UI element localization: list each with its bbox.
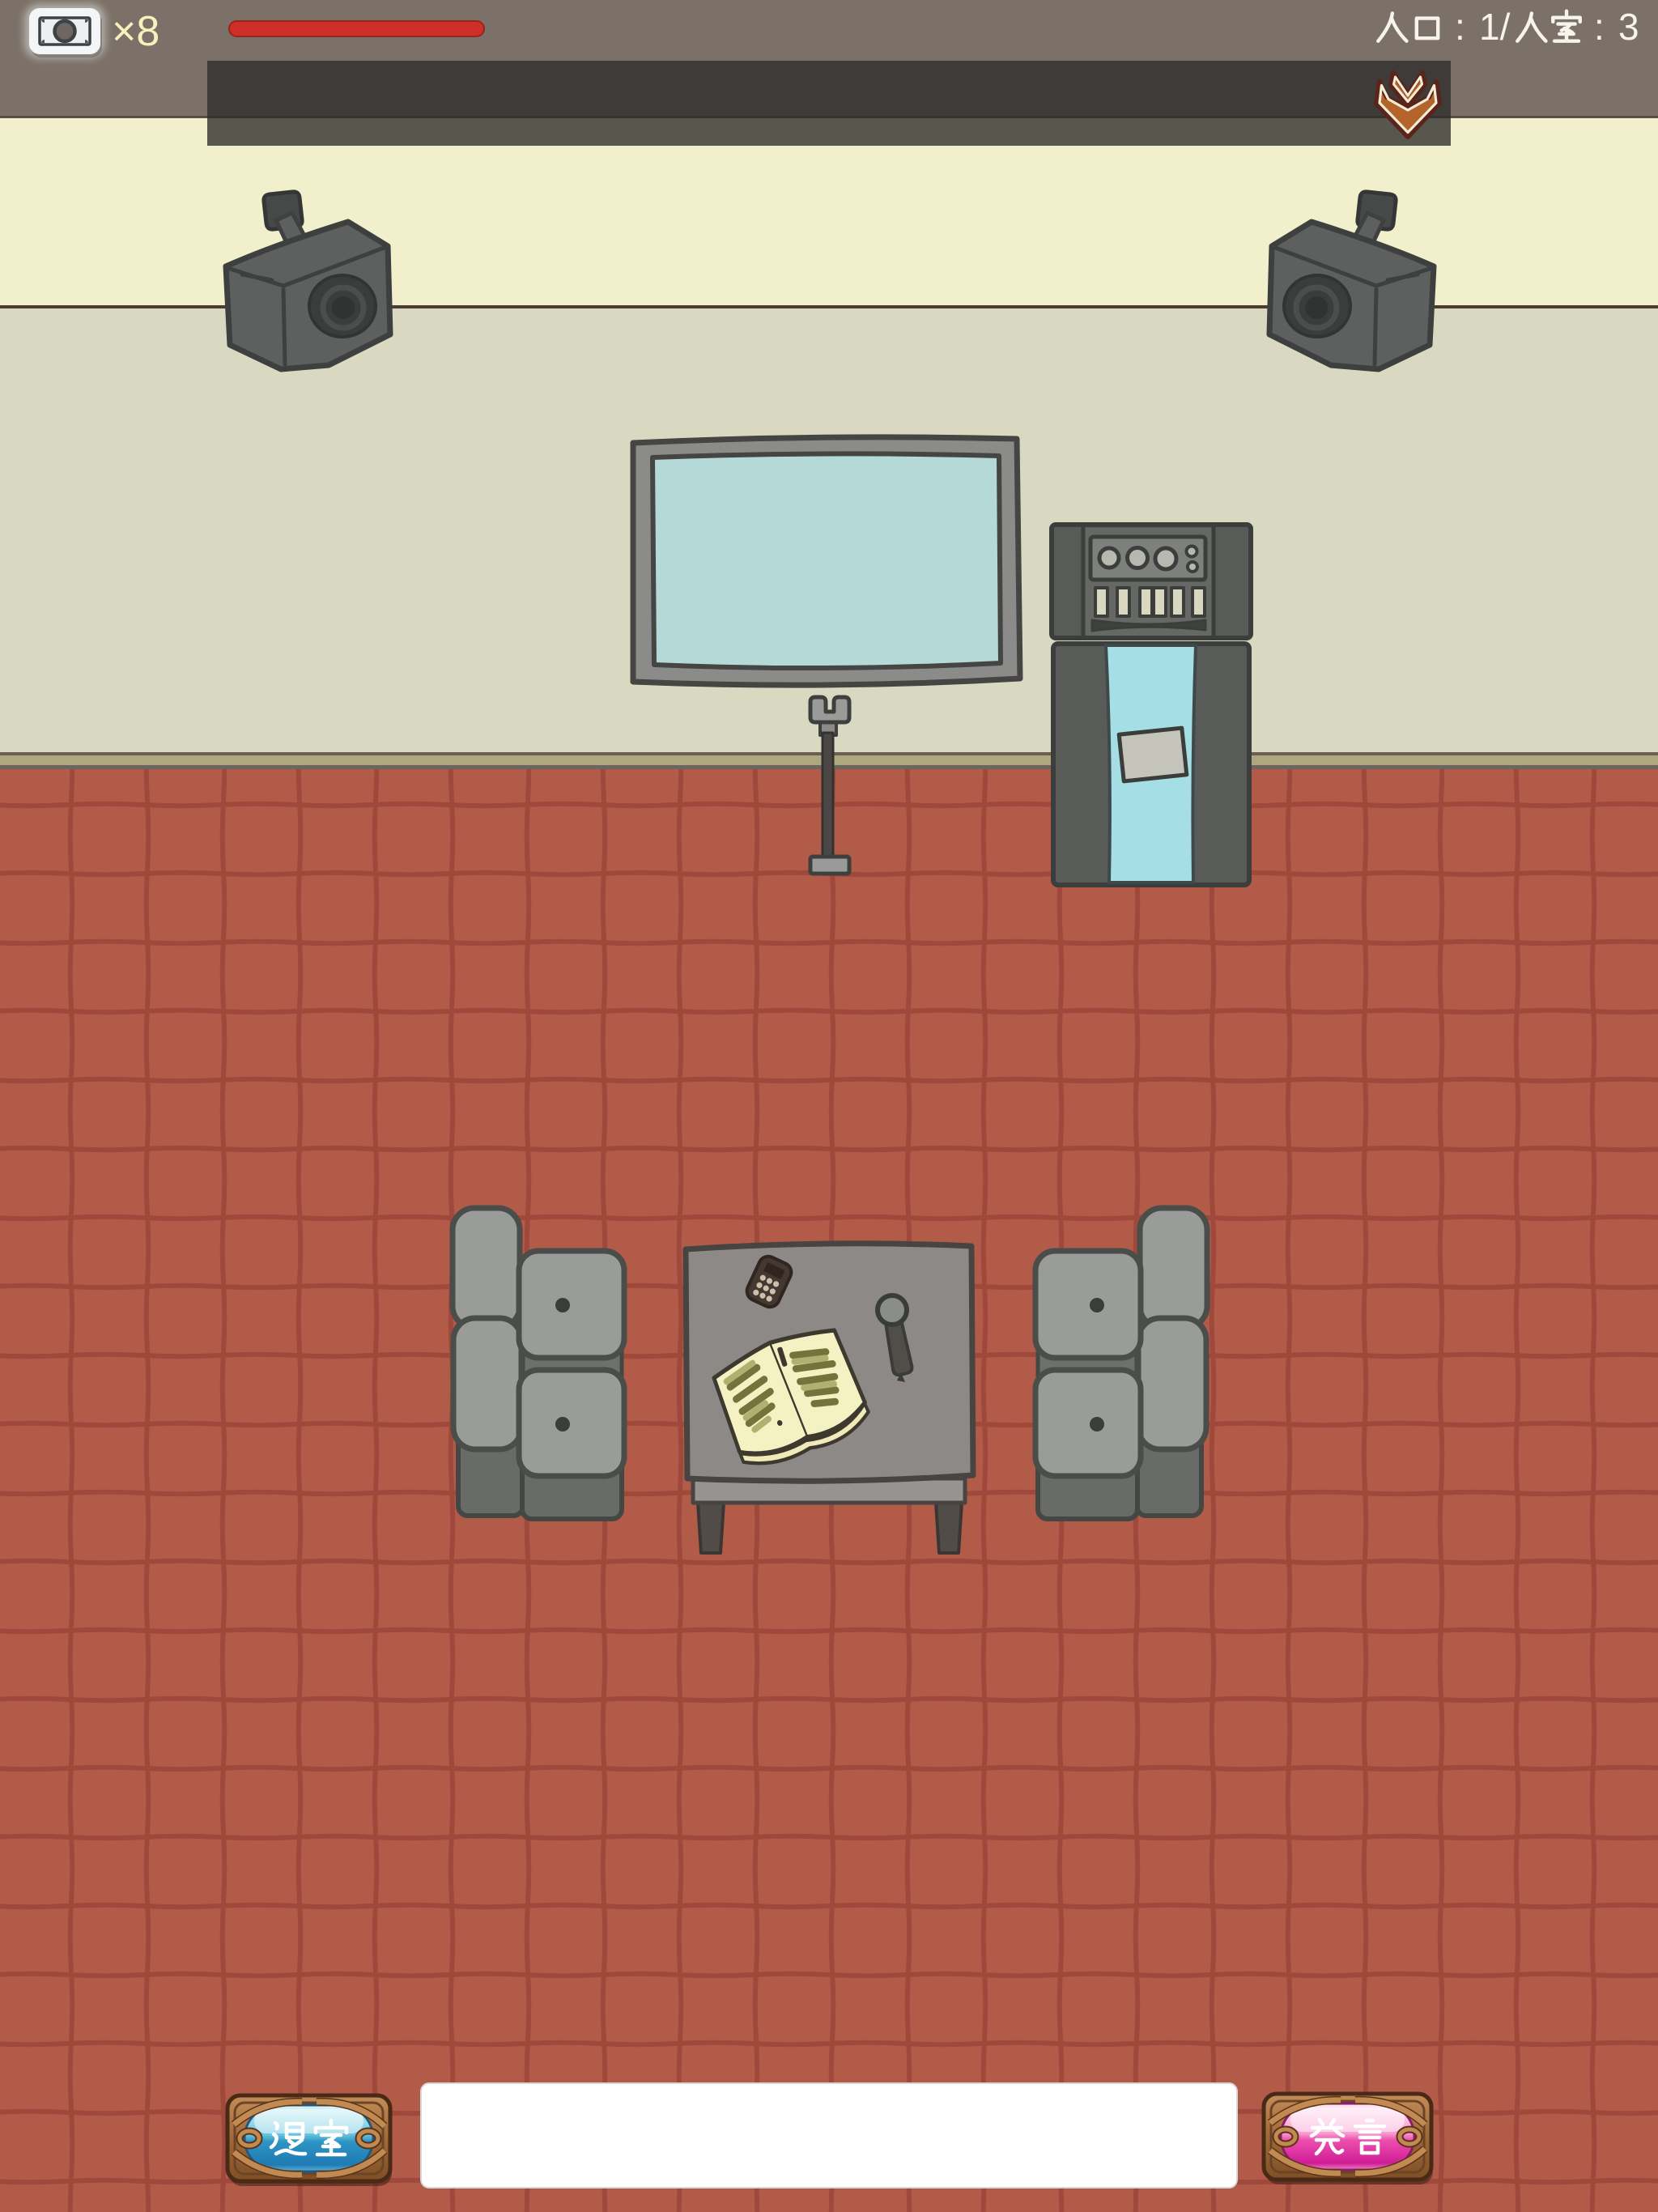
svg-text::: : <box>1455 6 1465 48</box>
svg-text::: : <box>1594 6 1605 48</box>
svg-text:×8: ×8 <box>112 8 159 55</box>
svg-text:3: 3 <box>1618 6 1639 48</box>
svg-text:1/: 1/ <box>1479 6 1511 48</box>
